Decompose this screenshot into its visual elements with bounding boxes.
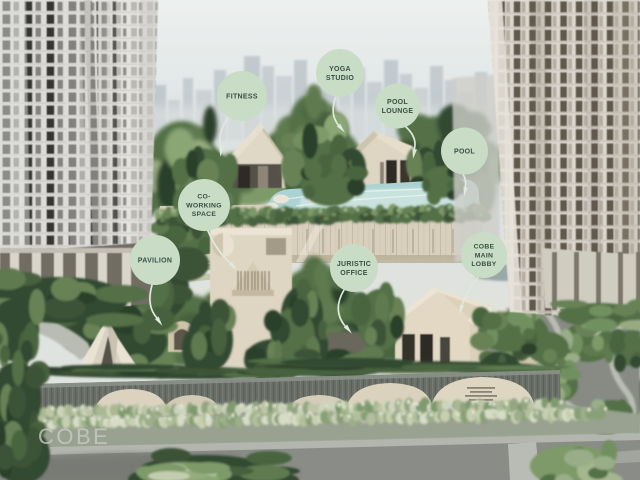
svg-text:PAVILION: PAVILION (138, 257, 172, 264)
svg-text:JURISTIC: JURISTIC (337, 261, 371, 268)
svg-text:OFFICE: OFFICE (340, 270, 367, 277)
svg-text:POOL: POOL (387, 99, 408, 106)
svg-text:YOGA: YOGA (329, 66, 351, 73)
svg-text:COBE: COBE (38, 424, 110, 449)
svg-text:STUDIO: STUDIO (326, 75, 354, 82)
svg-text:WORKING: WORKING (186, 202, 222, 209)
svg-text:SPACE: SPACE (192, 211, 217, 218)
svg-text:CO-: CO- (197, 194, 210, 201)
svg-text:LOUNGE: LOUNGE (382, 108, 414, 115)
svg-text:FITNESS: FITNESS (226, 94, 258, 101)
svg-text:MAIN: MAIN (475, 252, 494, 259)
svg-text:LOBBY: LOBBY (471, 261, 496, 268)
svg-text:COBE: COBE (474, 244, 495, 251)
svg-text:POOL: POOL (454, 148, 475, 155)
